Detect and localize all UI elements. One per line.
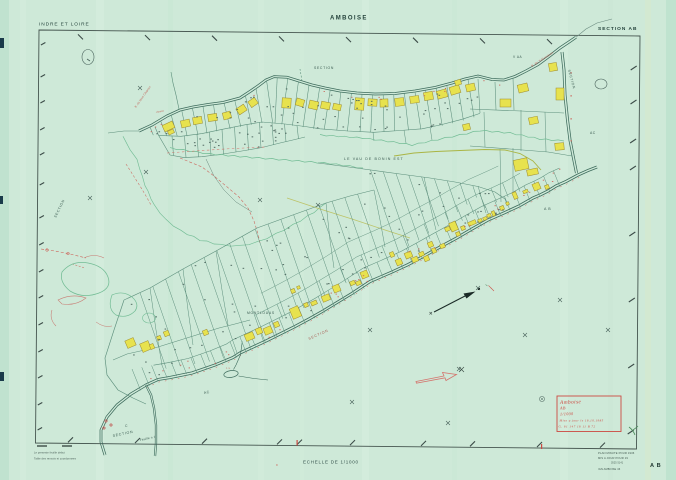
svg-text:C: C (125, 424, 128, 428)
svg-text:MIS A JOUR POUR 19: MIS A JOUR POUR 19 (598, 456, 628, 460)
svg-text:PLAN MINUTE POUR 1936: PLAN MINUTE POUR 1936 (598, 451, 635, 455)
svg-text:AMBOISE: AMBOISE (330, 16, 368, 22)
svg-text:A B: A B (650, 463, 661, 469)
svg-text:Table des renvois et coordonne: Table des renvois et coordonnees (34, 456, 77, 460)
svg-text:SECTION: SECTION (314, 66, 334, 70)
svg-text:G. 61 147 16 11 B 72: G. 61 147 16 11 B 72 (559, 425, 596, 429)
svg-text:AC: AC (590, 131, 596, 135)
svg-text:LE VAU DE BONIN EST: LE VAU DE BONIN EST (344, 157, 404, 161)
svg-text:INDRE ET LOIRE: INDRE ET LOIRE (39, 22, 90, 28)
svg-text:9: 9 (276, 463, 278, 467)
svg-text:t. v.: t. v. (226, 366, 231, 370)
svg-text:3525 5141: 3525 5141 (611, 462, 624, 465)
svg-text:IGN AMBOISE 46: IGN AMBOISE 46 (598, 467, 621, 471)
svg-text:1/1000: 1/1000 (560, 411, 574, 416)
svg-text:SECTION AB: SECTION AB (598, 26, 637, 32)
svg-text:MONTLOUAS: MONTLOUAS (247, 311, 275, 315)
svg-text:Le presente feuille debut: Le presente feuille debut (34, 451, 65, 455)
svg-text:ECHELLE DE 1/1000: ECHELLE DE 1/1000 (303, 460, 359, 465)
svg-text:A B: A B (544, 207, 551, 211)
svg-text:Mise a jour le 16.10.1985: Mise a jour le 16.10.1985 (559, 418, 604, 422)
svg-text:AB: AB (559, 405, 566, 410)
svg-text:V AA: V AA (513, 55, 522, 59)
